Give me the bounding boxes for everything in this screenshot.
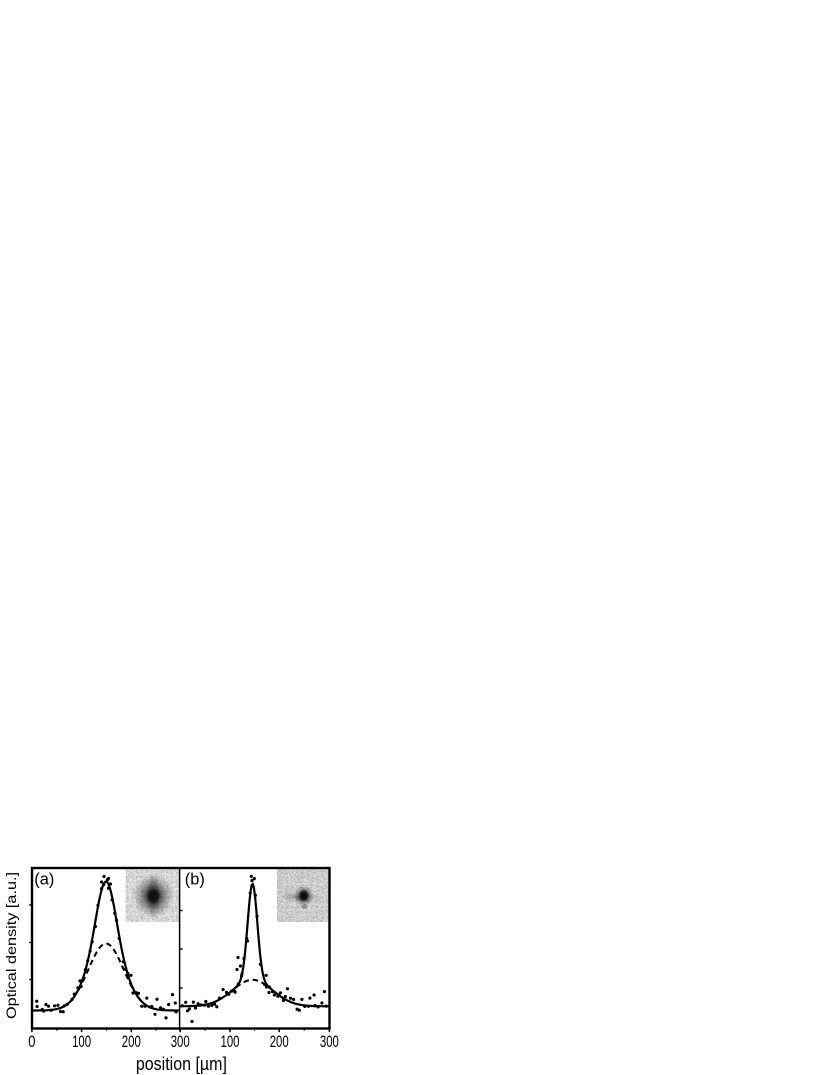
svg-text:(b): (b) <box>185 870 205 889</box>
svg-text:100: 100 <box>221 1032 240 1051</box>
svg-text:200: 200 <box>122 1032 141 1051</box>
svg-text:Optical density [a.u.]: Optical density [a.u.] <box>4 872 19 1019</box>
svg-text:200: 200 <box>270 1032 289 1051</box>
svg-text:300: 300 <box>171 1032 190 1051</box>
svg-text:100: 100 <box>72 1032 91 1051</box>
svg-text:(a): (a) <box>34 870 54 889</box>
svg-text:300: 300 <box>320 1032 339 1051</box>
svg-text:0: 0 <box>28 1032 35 1051</box>
svg-text:position [µm]: position [µm] <box>136 1053 227 1074</box>
